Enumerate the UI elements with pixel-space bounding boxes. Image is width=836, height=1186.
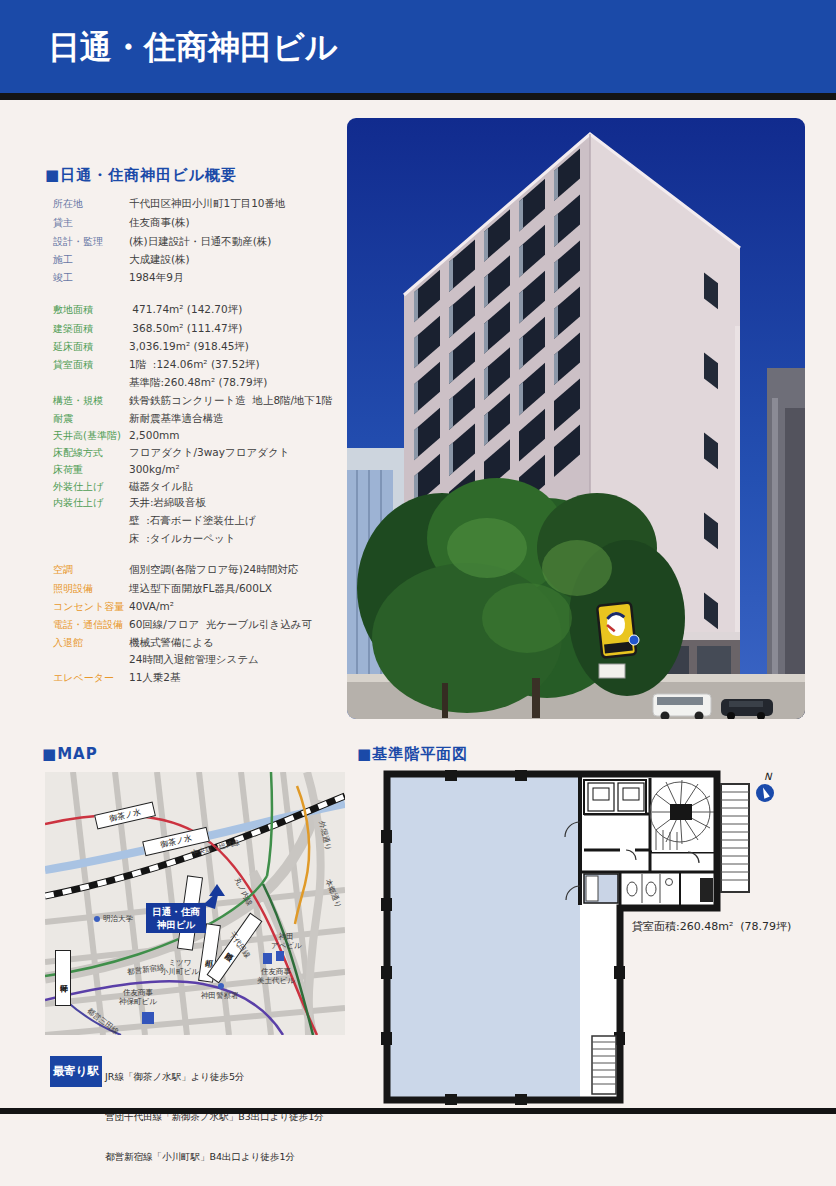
floorplan-heading: ■基準階平面図 [357, 745, 468, 764]
row-floor-area: 延床面積3,036.19m² (918.45坪) [53, 340, 383, 353]
meiji-univ-dot [94, 916, 100, 922]
row-label: 敷地面積 [53, 303, 129, 316]
row-elevator: エレベーター11人乗2基 [53, 671, 383, 684]
building-marker-2 [276, 951, 284, 961]
row-value: 11人乗2基 [129, 671, 181, 683]
row-label: 延床面積 [53, 340, 129, 353]
row-rental-area-1f: 貸室面積1階 :124.06m² (37.52坪) [53, 358, 383, 371]
row-value: (株)日建設計・日通不動産(株) [129, 235, 271, 247]
row-hvac: 空調個別空調(各階フロア毎)24時間対応 [53, 563, 383, 576]
row-value: 基準階:260.48m² (78.79坪) [129, 376, 267, 388]
row-completion: 竣工1984年9月 [53, 271, 383, 284]
row-label: コンセント容量 [53, 600, 129, 613]
row-value: 床 :タイルカーペット [129, 532, 235, 544]
small-sign [599, 664, 625, 678]
row-structure: 構造・規模鉄骨鉄筋コンクリート造 地上8階/地下1階 [53, 394, 383, 407]
row-value: 鉄骨鉄筋コンクリート造 地上8階/地下1階 [129, 394, 332, 406]
nearest-station-list: JR線「御茶ノ水駅」より徒歩5分 営団千代田線「新御茶ノ水駅」B3出口より徒歩1… [105, 1044, 324, 1186]
floor-plan-art [380, 770, 820, 1110]
row-wiring: 床配線方式フロアダクト/3wayフロアダクト [53, 446, 383, 459]
station-jimbocho: 神保町 [55, 950, 71, 1006]
subject-building-label: 日通・住商神田ビル [146, 903, 206, 933]
label-kanda-police: 神田警察署 [201, 991, 239, 1000]
row-value: 天井:岩綿吸音板 [129, 496, 206, 508]
row-building-area: 建築面積 368.50m² (111.47坪) [53, 322, 383, 335]
row-label: 所在地 [53, 197, 129, 210]
row-value: 40VA/m² [129, 600, 174, 612]
row-label: エレベーター [53, 671, 129, 684]
row-label: 床配線方式 [53, 446, 129, 459]
area-map: 御茶ノ水 御茶ノ水 新御茶ノ水 小川町 淡路町 神保町 中央線・総武線 丸ノ内線… [45, 772, 345, 1035]
brochure-page: 日通・住商神田ビル ■日通・住商神田ビル概要 所在地千代田区神田小川町1丁目10… [0, 0, 836, 1186]
building-marker-1 [263, 953, 272, 964]
label-meiji-university: 明治大学 [103, 914, 133, 923]
row-value: 個別空調(各階フロア毎)24時間対応 [129, 563, 298, 575]
lower-stair [592, 1036, 616, 1094]
row-label: 内装仕上げ [53, 496, 129, 509]
row-label: 入退館 [53, 636, 129, 649]
row-label: 施工 [53, 253, 129, 266]
row-value: 3,036.19m² (918.45坪) [129, 340, 249, 352]
station-line: 都営新宿線「小川町駅」B4出口より徒歩1分 [105, 1150, 324, 1163]
row-floor-load: 床荷重300kg/m² [53, 463, 383, 476]
header-band: 日通・住商神田ビル [0, 0, 836, 93]
subject-building-line2: 神田ビル [157, 919, 195, 930]
row-ceiling: 天井高(基準階)2,500mm [53, 429, 383, 442]
row-value: 300kg/m² [129, 463, 180, 475]
round-traffic-sign [629, 635, 639, 645]
building-photo [347, 118, 805, 719]
map-heading: ■MAP [42, 745, 98, 763]
row-label: 建築面積 [53, 322, 129, 335]
dark-car [721, 699, 773, 719]
row-seismic: 耐震新耐震基準適合構造 [53, 412, 383, 425]
row-value: 1階 :124.06m² (37.52坪) [129, 358, 260, 370]
row-label: 床荷重 [53, 463, 129, 476]
building-photo-art [347, 118, 805, 719]
row-value: 2,500mm [129, 429, 180, 441]
rental-area [390, 777, 580, 1097]
row-value: 1984年9月 [129, 271, 183, 283]
row-label: 外装仕上げ [53, 480, 129, 493]
row-lessor: 貸主住友商事(株) [53, 216, 383, 229]
label-kanda-ape-1: 神田 [279, 932, 294, 941]
row-label: 耐震 [53, 412, 129, 425]
label-mitsuwa-2: 小川町ビル [161, 967, 199, 976]
row-value: 24時間入退館管理システム [129, 653, 259, 665]
spiral-staircase [650, 778, 714, 852]
row-value: 住友商事(株) [129, 216, 190, 228]
north-label: N [764, 771, 771, 782]
row-exterior: 外装仕上げ磁器タイル貼 [53, 480, 383, 493]
row-value: 新耐震基準適合構造 [129, 412, 224, 424]
station-line: JR線「御茶ノ水駅」より徒歩5分 [105, 1070, 324, 1083]
building-marker-3 [142, 1012, 154, 1024]
row-telecom: 電話・通信設備60回線/フロア 光ケーブル引き込み可 [53, 618, 383, 631]
row-label: 照明設備 [53, 582, 129, 595]
row-label: 貸室面積 [53, 358, 129, 371]
row-interior-wall: 壁 :石膏ボード塗装仕上げ [53, 514, 383, 527]
elevators [584, 780, 646, 814]
row-site-area: 敷地面積 471.74m² (142.70坪) [53, 303, 383, 316]
row-outlet: コンセント容量40VA/m² [53, 600, 383, 613]
row-location: 所在地千代田区神田小川町1丁目10番地 [53, 197, 383, 210]
row-access-1: 入退館機械式警備による [53, 636, 383, 649]
row-value: 大成建設(株) [129, 253, 190, 265]
row-interior-ceiling: 内装仕上げ天井:岩綿吸音板 [53, 496, 383, 509]
row-label: 構造・規模 [53, 394, 129, 407]
pelican-sign [597, 602, 636, 657]
row-rental-area-std: 基準階:260.48m² (78.79坪) [53, 376, 383, 389]
overview-heading: ■日通・住商神田ビル概要 [45, 166, 237, 185]
row-value: 千代田区神田小川町1丁目10番地 [129, 197, 286, 209]
label-midoyo-1: 住友商事 [261, 967, 291, 976]
row-value: 磁器タイル貼 [129, 480, 193, 492]
row-label: 竣工 [53, 271, 129, 284]
nearest-station-badge: 最寄り駅 [50, 1056, 102, 1087]
row-value: 埋込型下面開放FL器具/600LX [129, 582, 272, 594]
row-label: 天井高(基準階) [53, 429, 129, 442]
row-label: 空調 [53, 563, 129, 576]
row-construction: 施工大成建設(株) [53, 253, 383, 266]
label-midoyo-2: 美土代ビル [257, 976, 295, 985]
external-stair [721, 784, 749, 892]
subject-building-line1: 日通・住商 [152, 906, 200, 917]
row-value: フロアダクト/3wayフロアダクト [129, 446, 289, 458]
floor-plan [380, 770, 820, 1110]
top-divider [0, 93, 836, 100]
row-value: 60回線/フロア 光ケーブル引き込み可 [129, 618, 312, 630]
rental-area-note: 貸室面積:260.48m² (78.79坪) [632, 919, 791, 934]
label-kanda-ape-2: アペビル [271, 941, 302, 950]
row-label: 電話・通信設備 [53, 618, 129, 631]
row-value: 壁 :石膏ボード塗装仕上げ [129, 514, 255, 526]
compass-needle [760, 786, 770, 798]
white-van [653, 694, 711, 719]
row-interior-floor: 床 :タイルカーペット [53, 532, 383, 545]
row-label: 貸主 [53, 216, 129, 229]
row-value: 368.50m² (111.47坪) [129, 322, 242, 334]
label-sumitomo-jimbocho-1: 住友商事 [123, 988, 153, 997]
police-dot [218, 983, 224, 989]
row-value: 機械式警備による [129, 636, 214, 648]
trees [357, 478, 685, 718]
row-value: 471.74m² (142.70坪) [129, 303, 242, 315]
row-lighting: 照明設備埋込型下面開放FL器具/600LX [53, 582, 383, 595]
compass-icon [756, 784, 774, 802]
background-buildings-right [767, 368, 805, 719]
page-title: 日通・住商神田ビル [48, 26, 338, 70]
row-access-2: 24時間入退館管理システム [53, 653, 383, 666]
row-label: 設計・監理 [53, 235, 129, 248]
pantry [584, 874, 618, 903]
label-mitsuwa-1: ミツワ [168, 958, 191, 967]
bottom-divider [0, 1108, 836, 1114]
row-design: 設計・監理(株)日建設計・日通不動産(株) [53, 235, 383, 248]
label-sumitomo-jimbocho-2: 神保町ビル [119, 997, 157, 1006]
